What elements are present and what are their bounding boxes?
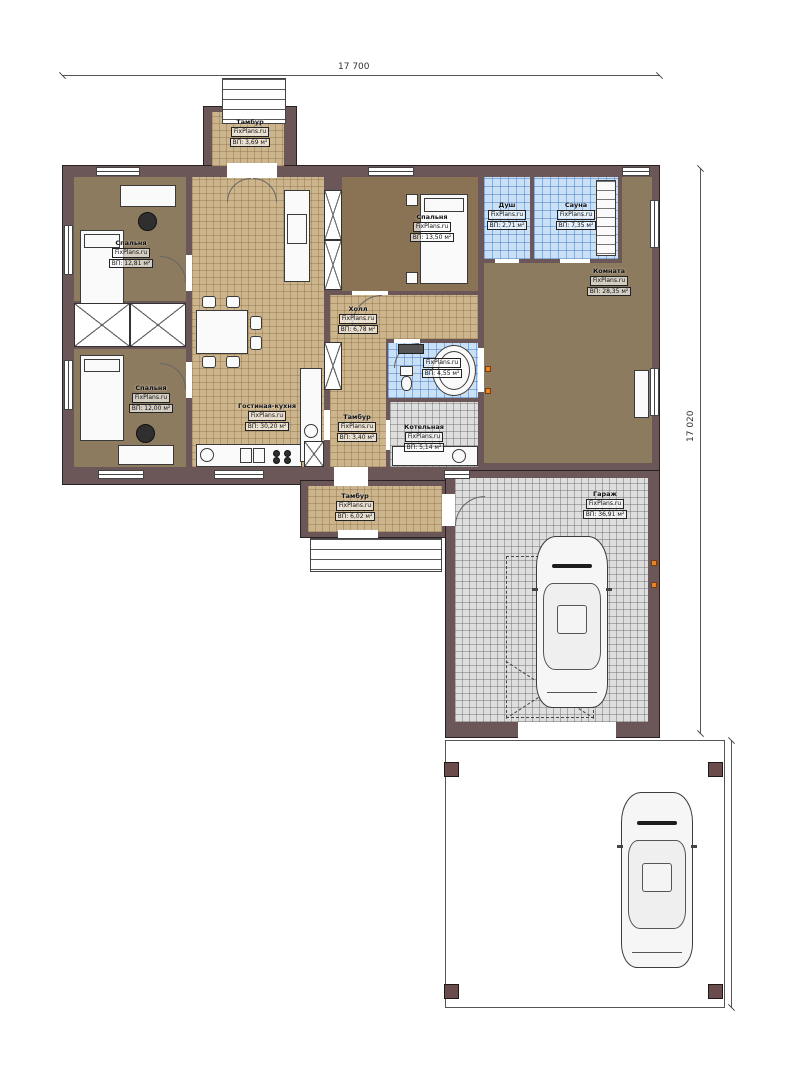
washbasin [398, 344, 424, 354]
shower-door-opening [495, 259, 519, 263]
label-room: Комната FixPlans.ru ВП: 28,35 м² [577, 268, 641, 296]
wardrobe [324, 240, 342, 290]
label-bedroom1: Спальня FixPlans.ru ВП: 12,81 м² [96, 240, 166, 268]
bedroom2-door-opening [186, 362, 192, 398]
stove [272, 449, 294, 463]
wardrobe [304, 441, 324, 467]
watermark: FixPlans.ru [338, 422, 376, 432]
label-garage: Гараж FixPlans.ru ВП: 36,91 м² [574, 491, 636, 519]
watermark: FixPlans.ru [248, 411, 286, 421]
watermark: FixPlans.ru [488, 210, 526, 220]
tambour-to-garage-opening [442, 494, 455, 526]
dresser [634, 370, 649, 418]
window [214, 470, 264, 479]
label-tambour-side: Тамбур FixPlans.ru ВП: 6,02 м² [326, 493, 384, 521]
window [96, 167, 140, 176]
carport-post [708, 984, 723, 999]
window [368, 167, 414, 176]
label-shower: Душ FixPlans.ru ВП: 2,71 м² [483, 202, 531, 230]
kitchen-sink [253, 448, 265, 463]
garage-gate-opening [518, 722, 616, 740]
dimension-line-carport [731, 740, 732, 1008]
chair [250, 336, 262, 350]
pillow [424, 198, 464, 212]
toilet-tank [400, 366, 413, 376]
watermark: FixPlans.ru [339, 314, 377, 324]
porch-to-living-opening [227, 163, 277, 178]
watermark: FixPlans.ru [423, 358, 461, 368]
wardrobe [74, 303, 130, 347]
radiator-mark [651, 560, 657, 566]
side-steps [310, 538, 442, 572]
sink-bowl [200, 448, 214, 462]
kitchen-sink [240, 448, 252, 463]
window [444, 470, 470, 479]
pillow [84, 359, 120, 372]
radiator-mark [485, 366, 491, 372]
chair [202, 356, 216, 368]
label-bedroom3: Спальня FixPlans.ru ВП: 13,50 м² [398, 214, 466, 242]
label-hall: Холл FixPlans.ru ВП: 6,78 м² [328, 306, 388, 334]
sauna-door-opening [560, 259, 590, 263]
tambour-down-opening [334, 467, 368, 486]
radiator-mark [485, 388, 491, 394]
shelf-unit-inner [287, 214, 307, 244]
hall-to-room-opening [478, 348, 484, 392]
carport-post [708, 762, 723, 777]
window [622, 167, 650, 176]
chair [138, 212, 157, 231]
dimension-line-right [700, 168, 701, 734]
floor-plan-canvas: 17 700 17 020 7 710 [0, 0, 792, 1080]
chair [250, 316, 262, 330]
bedroom1-door-opening [186, 255, 192, 291]
nightstand [406, 194, 418, 206]
watermark: FixPlans.ru [336, 501, 374, 511]
car-in-carport [621, 792, 693, 968]
chair [202, 296, 216, 308]
carport-post [444, 762, 459, 777]
dimension-right-value: 17 020 [686, 411, 696, 443]
watermark: FixPlans.ru [405, 432, 443, 442]
label-tambour-mid: Тамбур FixPlans.ru ВП: 3,40 м² [328, 414, 386, 442]
boiler-door-opening [386, 420, 390, 450]
dimension-line-top [62, 75, 660, 76]
room-main-floor-upper [622, 177, 652, 263]
window [650, 200, 659, 248]
side-exit-opening [338, 530, 378, 538]
watermark: FixPlans.ru [112, 248, 150, 258]
label-bathroom: FixPlans.ru ВП: 4,55 м² [414, 358, 470, 378]
window [98, 470, 144, 479]
window [650, 368, 659, 416]
desk [120, 185, 176, 207]
dimension-top-value: 17 700 [338, 62, 370, 72]
watermark: FixPlans.ru [557, 210, 595, 220]
watermark: FixPlans.ru [590, 276, 628, 286]
dining-table [196, 310, 248, 354]
label-living: Гостиная-кухня FixPlans.ru ВП: 30,20 м² [226, 403, 308, 431]
label-boiler: Котельная FixPlans.ru ВП: 5,14 м² [392, 424, 456, 452]
window [64, 360, 73, 410]
bedroom3-door-opening [352, 291, 388, 295]
watermark: FixPlans.ru [231, 127, 269, 137]
chair [226, 296, 240, 308]
wardrobe [324, 190, 342, 240]
carport-post [444, 984, 459, 999]
watermark: FixPlans.ru [132, 393, 170, 403]
desk [118, 445, 174, 465]
toilet [401, 376, 412, 391]
nightstand [406, 272, 418, 284]
label-bedroom2: Спальня FixPlans.ru ВП: 12,00 м² [118, 385, 184, 413]
wardrobe [324, 342, 342, 390]
car-in-garage [536, 536, 608, 708]
chair [226, 356, 240, 368]
window [64, 225, 73, 275]
wardrobe [130, 303, 186, 347]
radiator-mark [651, 582, 657, 588]
chair [136, 424, 155, 443]
watermark: FixPlans.ru [413, 222, 451, 232]
label-porch: Тамбур FixPlans.ru ВП: 3,69 м² [214, 119, 286, 147]
watermark: FixPlans.ru [586, 499, 624, 509]
label-sauna: Сауна FixPlans.ru ВП: 7,35 м² [548, 202, 604, 230]
